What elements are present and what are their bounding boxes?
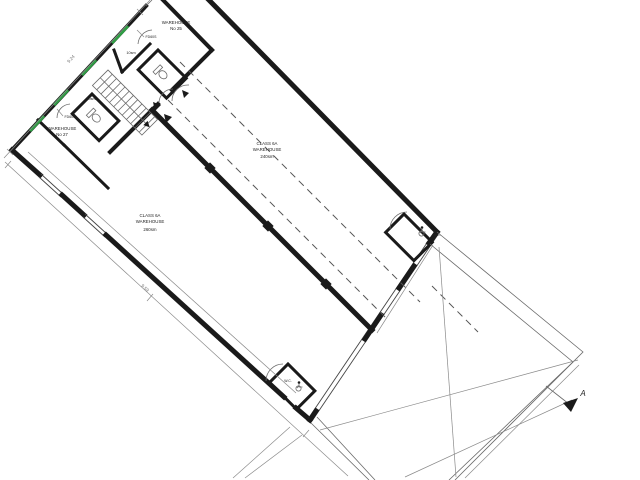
wc-label-bottom: W.C. bbox=[284, 379, 292, 383]
class6a-240-line2: WAREHOUSE bbox=[253, 147, 282, 152]
dimension-label-sw: 9.59 bbox=[140, 283, 150, 293]
class6a-260-area: 260sm bbox=[143, 227, 157, 232]
toilet-icon bbox=[86, 108, 103, 125]
site-line bbox=[233, 427, 290, 478]
escape-route-marker bbox=[54, 90, 68, 105]
wall-w27-south bbox=[64, 145, 108, 188]
wc-room-bottom bbox=[270, 364, 315, 409]
accessible-wc-icon bbox=[296, 381, 303, 391]
yard-boundary-inner bbox=[430, 244, 573, 480]
wall-southwest bbox=[12, 150, 310, 420]
yard-cross-line bbox=[405, 400, 572, 477]
wc-label-right: W.C. bbox=[433, 233, 441, 237]
warehouse-27-label: WAREHOUSE bbox=[48, 126, 77, 131]
warehouse-25-number: No 25 bbox=[170, 26, 182, 31]
escape-route-marker bbox=[82, 60, 96, 75]
yard-boundary-west bbox=[317, 417, 375, 480]
class6a-260-line1: CLASS 6A bbox=[140, 213, 161, 218]
escape-route-marker bbox=[112, 26, 128, 43]
toilet-icon bbox=[153, 65, 170, 82]
yard-boundary-west bbox=[311, 423, 369, 480]
wall-lobby bbox=[114, 50, 122, 72]
wall-stair-north bbox=[122, 44, 150, 72]
floor-plan-page: 9.24 9.59 A WAREHOUSE No 25 10sm FD60S W… bbox=[0, 0, 640, 480]
door-swings bbox=[57, 30, 407, 381]
yard-cross-line bbox=[320, 360, 578, 430]
section-label: A bbox=[579, 389, 585, 398]
toilet-room-lower bbox=[72, 94, 119, 141]
class6a-260-line2: WAREHOUSE bbox=[136, 219, 165, 224]
section-arrow-icon bbox=[563, 398, 578, 412]
yard-area bbox=[233, 232, 583, 480]
fire-door-label-2: FD60S bbox=[65, 115, 77, 119]
wall-unit25-east bbox=[163, 0, 212, 50]
area-label-27: 10sm bbox=[86, 97, 95, 101]
toilet-room-upper bbox=[138, 50, 186, 98]
yard-cross-line bbox=[377, 245, 433, 333]
yard-cross-line bbox=[439, 247, 456, 477]
building-outer-walls bbox=[12, 0, 439, 421]
warehouse-25-label: WAREHOUSE bbox=[162, 20, 191, 25]
dimension-label-nw: 9.24 bbox=[66, 54, 76, 64]
area-label-25: 10sm bbox=[126, 51, 135, 55]
yard-boundary-outer bbox=[437, 232, 583, 480]
section-line bbox=[546, 386, 569, 404]
warehouse-27-number: No 27 bbox=[56, 132, 68, 137]
class6a-240-area: 240sm bbox=[260, 154, 274, 159]
section-marker: A bbox=[546, 386, 586, 412]
dimension-tick bbox=[303, 430, 309, 437]
door-leaf-triangle bbox=[182, 90, 189, 98]
dimension-line-sw bbox=[5, 162, 348, 476]
dimension-lines: 9.24 9.59 bbox=[4, 0, 348, 476]
wall-southeast-glazed bbox=[308, 231, 439, 421]
yard-cross-line bbox=[465, 365, 579, 478]
floor-plan-drawing: 9.24 9.59 A WAREHOUSE No 25 10sm FD60S W… bbox=[0, 0, 640, 480]
fire-door-label-1: FD60S bbox=[146, 35, 158, 39]
overhead-dashed-lines bbox=[168, 62, 478, 332]
class6a-240-line1: CLASS 6A bbox=[257, 141, 278, 146]
